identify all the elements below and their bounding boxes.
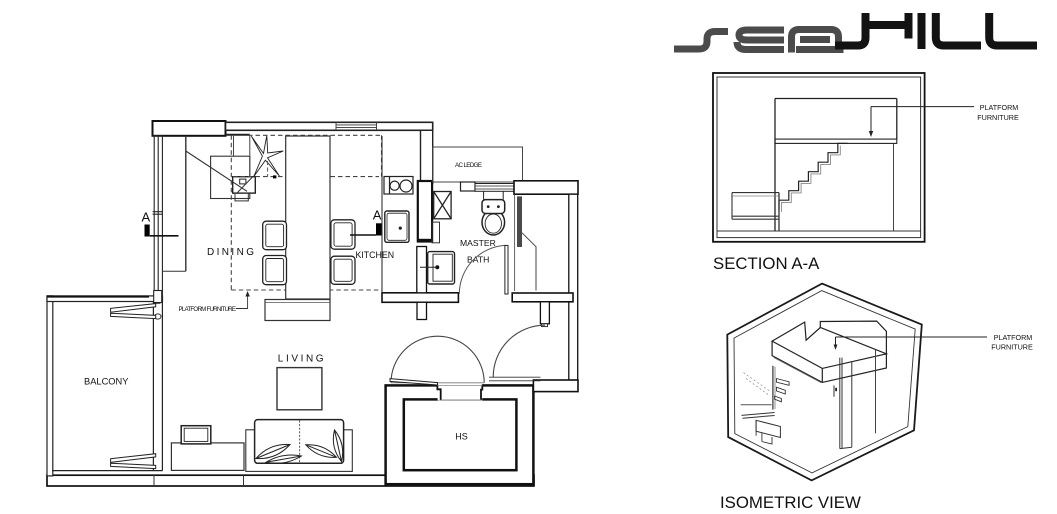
- svg-text:KITCHEN: KITCHEN: [356, 250, 395, 260]
- svg-text:FURNITURE: FURNITURE: [977, 113, 1019, 122]
- svg-text:PLATFORM FURNITURE: PLATFORM FURNITURE: [179, 306, 237, 313]
- svg-text:ISOMETRIC VIEW: ISOMETRIC VIEW: [720, 493, 861, 512]
- svg-text:A: A: [142, 210, 151, 225]
- svg-text:LIVING: LIVING: [278, 353, 326, 364]
- svg-text:HS: HS: [455, 432, 468, 442]
- svg-text:PLATFORM: PLATFORM: [980, 103, 1019, 112]
- svg-text:SECTION A-A: SECTION A-A: [713, 254, 820, 273]
- svg-text:FURNITURE: FURNITURE: [991, 343, 1033, 352]
- svg-text:DINING: DINING: [207, 247, 256, 258]
- svg-text:MASTER: MASTER: [460, 238, 496, 248]
- svg-text:BALCONY: BALCONY: [84, 377, 128, 387]
- svg-text:AC LEDGE: AC LEDGE: [455, 162, 482, 169]
- svg-text:A: A: [373, 208, 382, 223]
- svg-text:PLATFORM: PLATFORM: [994, 333, 1033, 342]
